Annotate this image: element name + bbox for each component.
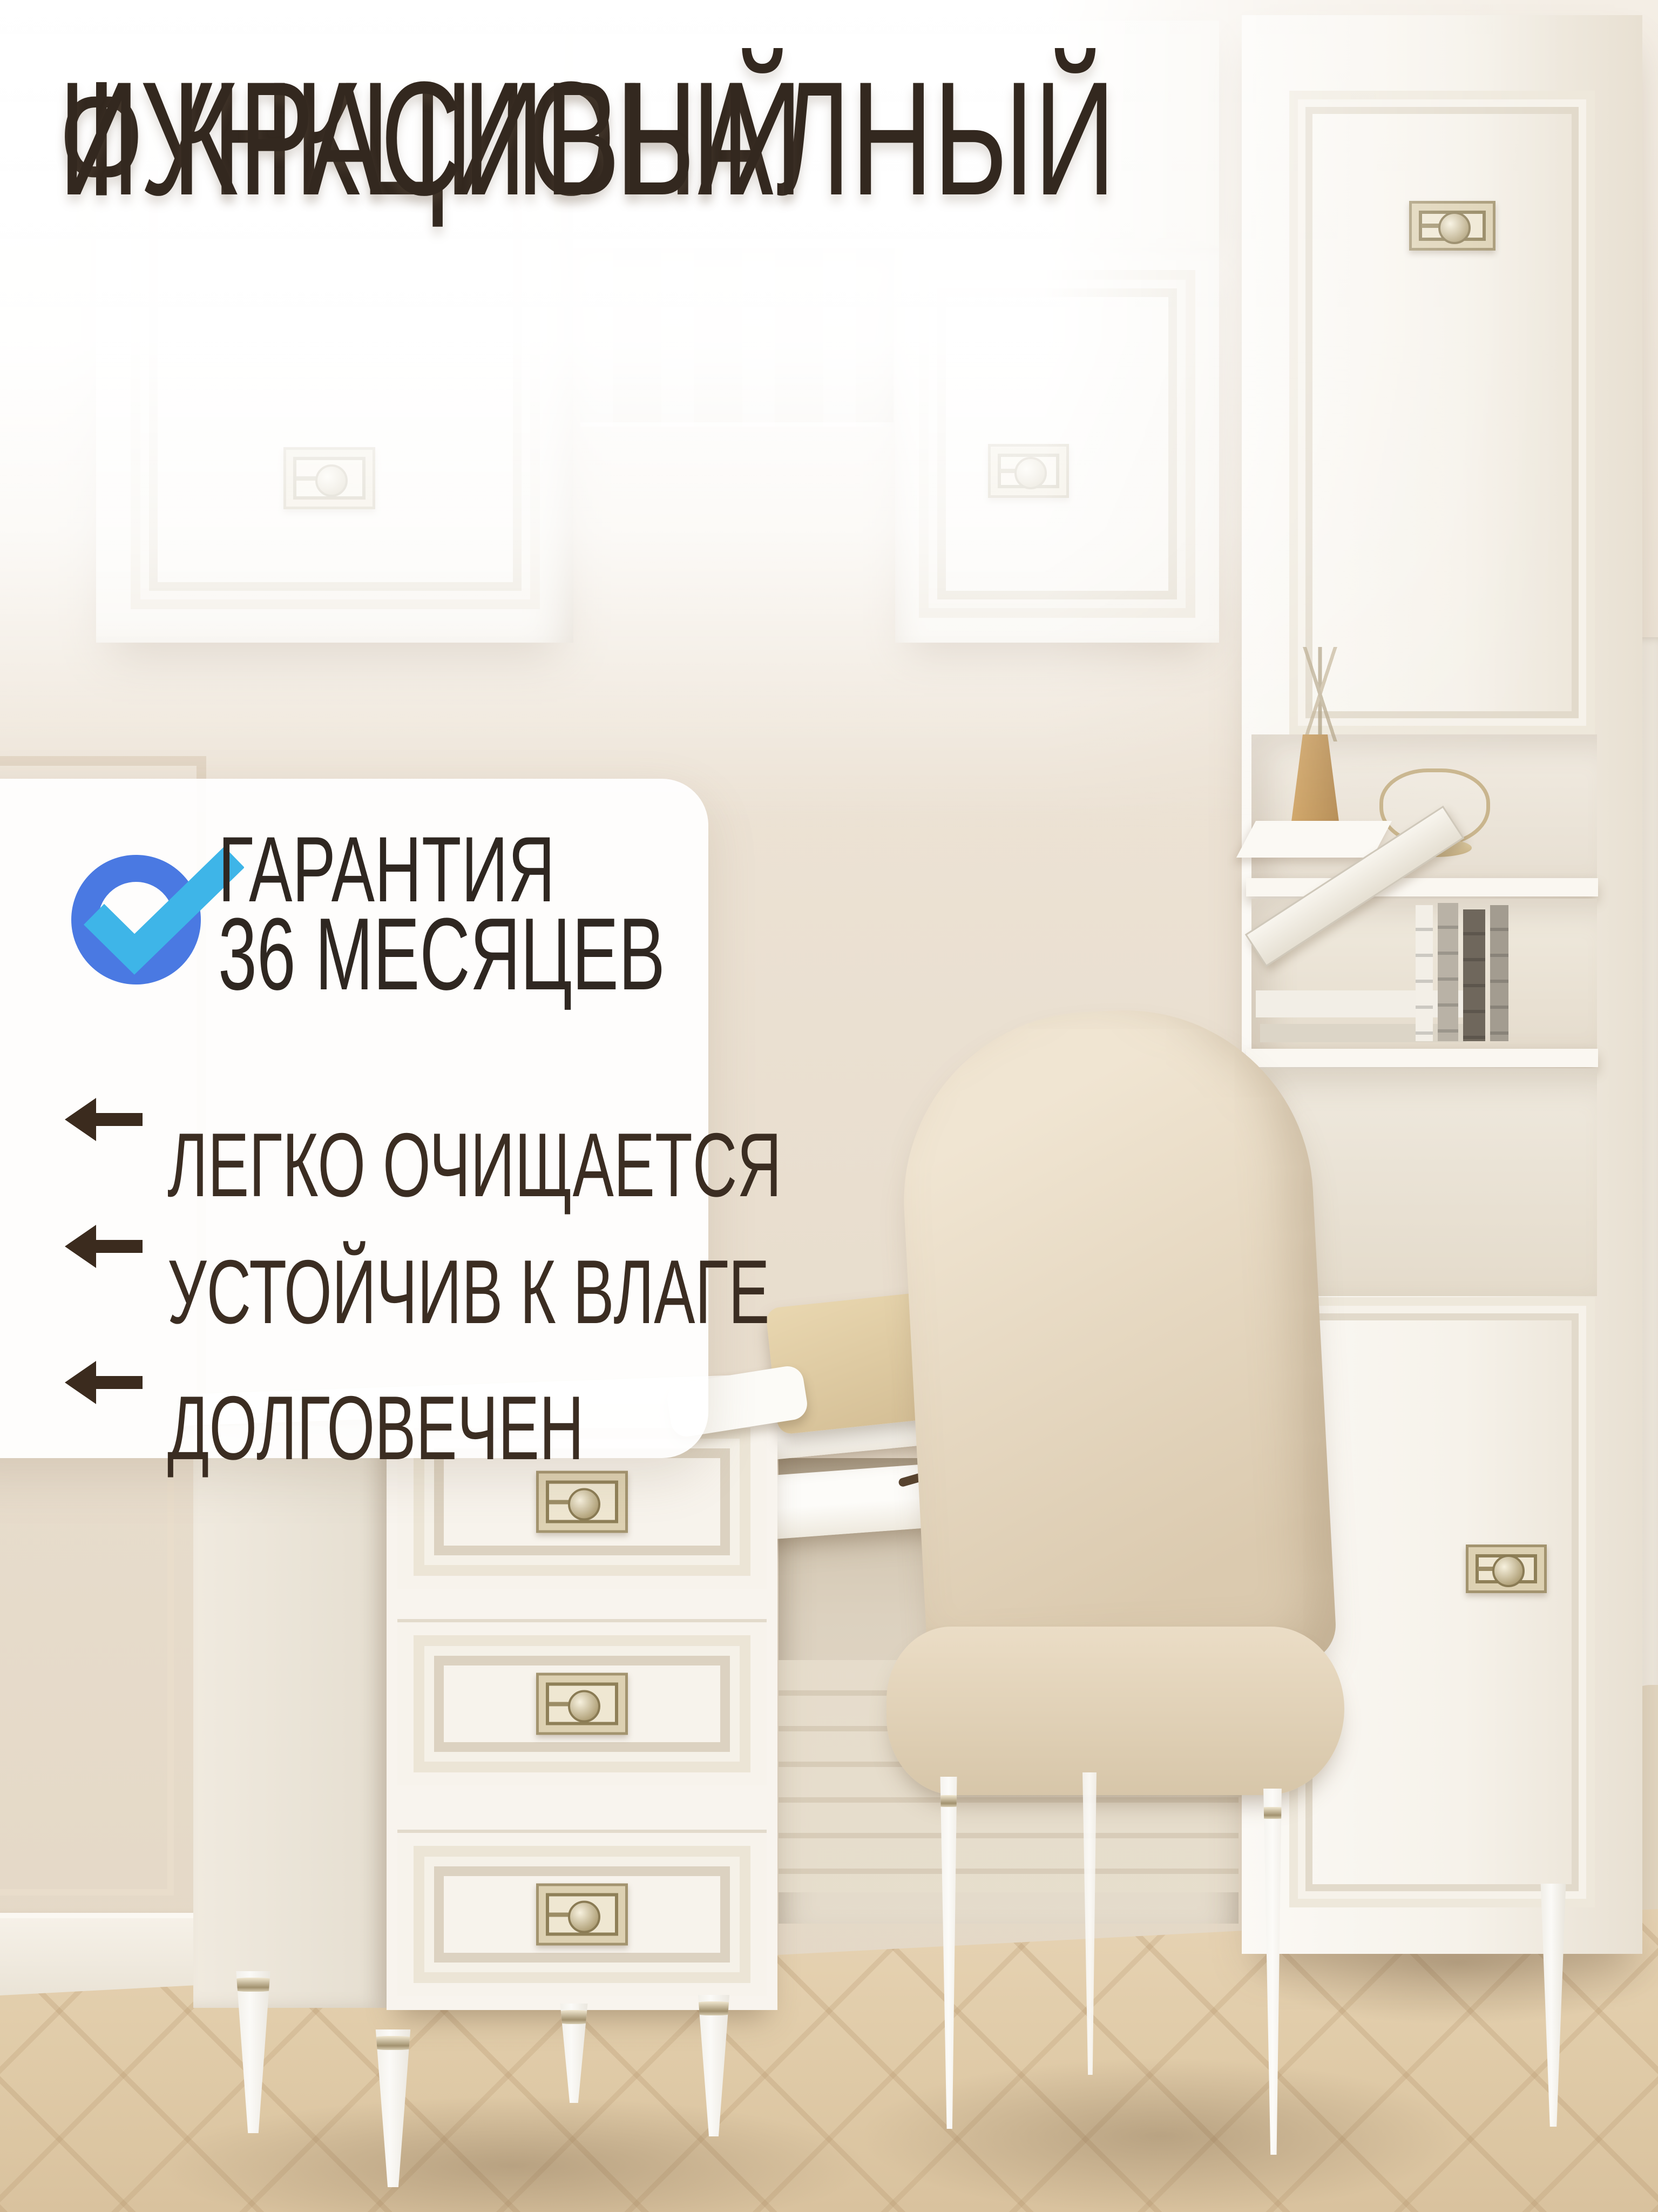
book-spine xyxy=(1438,903,1458,1041)
drawer-handle xyxy=(536,1884,628,1946)
product-banner: ФУНКЦИОНАЛНЫЙ И КРАСИВЫЙ ГАРАНТИЯ 36 МЕС… xyxy=(0,0,1658,2212)
feature-item-moisture-resistant: УСТОЙЧИВ К ВЛАГЕ xyxy=(64,1198,167,1295)
drawer xyxy=(397,1833,767,1996)
chair-seat xyxy=(886,1627,1344,1795)
title-line-2: И КРАСИВЫЙ xyxy=(58,65,803,212)
drawer xyxy=(397,1622,767,1785)
check-circle-icon xyxy=(60,846,244,986)
shelf-board xyxy=(1246,1049,1598,1067)
left-arrow-icon xyxy=(64,1360,145,1405)
left-arrow-icon xyxy=(64,1097,145,1142)
floor-shadow xyxy=(157,2095,869,2212)
chair-back xyxy=(894,1001,1337,1682)
shelf-board xyxy=(1246,878,1598,896)
drawer-handle xyxy=(536,1471,628,1533)
feature-item-durable: ДОЛГОВЕЧЕН xyxy=(64,1334,167,1431)
upright-books xyxy=(1416,902,1508,1041)
tall-cabinet-bottom-door xyxy=(1289,1297,1595,1907)
left-arrow-icon xyxy=(64,1224,145,1269)
drawer-unit xyxy=(387,1404,777,2010)
book-spine xyxy=(1463,909,1485,1041)
feature-item-easy-clean: ЛЕГКО ОЧИЩАЕТСЯ xyxy=(64,1071,167,1168)
drawer-unit-side xyxy=(193,1426,387,2008)
cabinet-handle xyxy=(1466,1545,1547,1593)
book-spine xyxy=(1416,905,1433,1041)
book-spine xyxy=(1490,905,1508,1041)
drawer-handle xyxy=(536,1673,628,1735)
